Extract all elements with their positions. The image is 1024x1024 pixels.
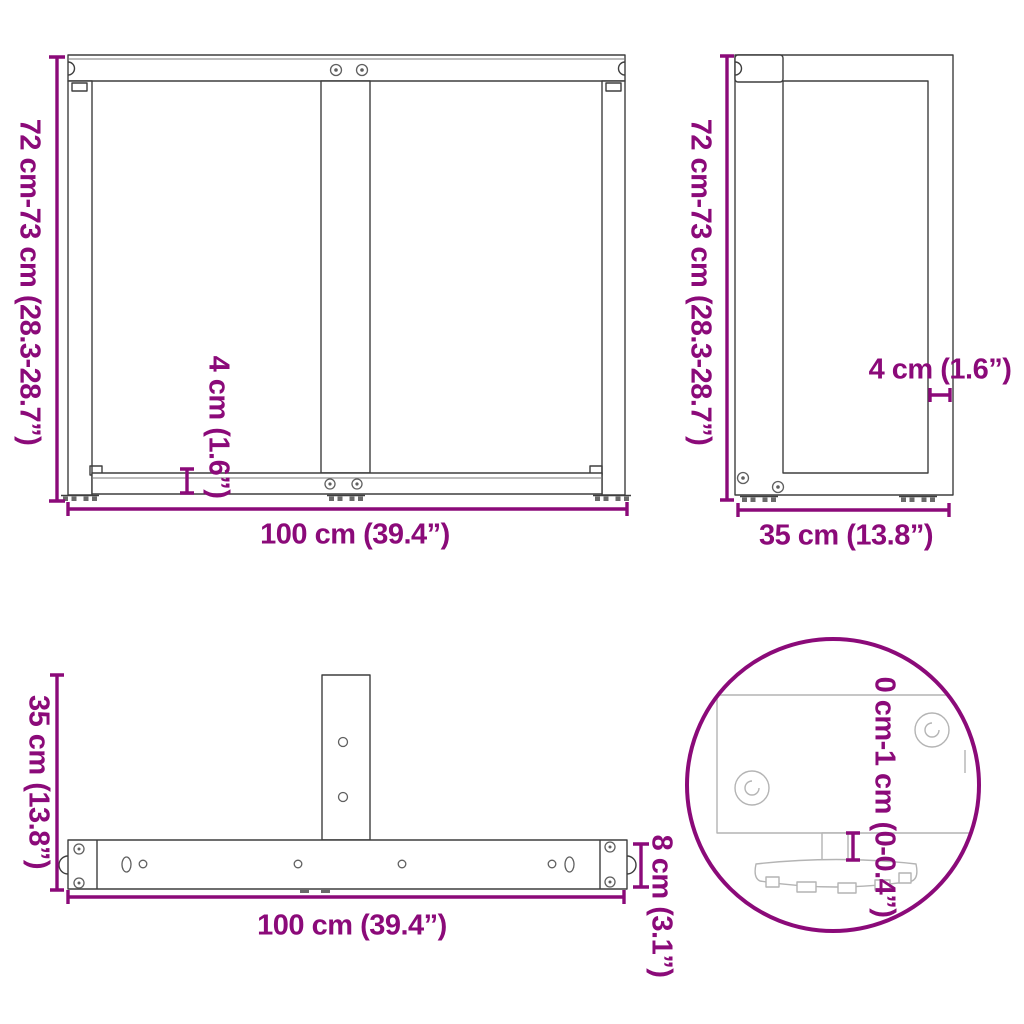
- front-width-dimension-line: [68, 502, 627, 516]
- side-height-dimension-line: [720, 56, 734, 500]
- front-view-height-label: 72 cm-73 cm (28.3-28.7”): [15, 119, 44, 446]
- top-view-width-label: 100 cm (39.4”): [257, 912, 447, 941]
- front-view-bar-label: 4 cm (1.6”): [204, 356, 233, 499]
- front-view-drawing: [49, 55, 631, 516]
- detail-view-drawing: [687, 639, 1017, 931]
- side-rear-foot: [899, 497, 937, 503]
- side-view-profile-label: 4 cm (1.6”): [869, 356, 1012, 385]
- front-height-dimension-line: [49, 57, 65, 501]
- front-view-width-label: 100 cm (39.4”): [260, 521, 450, 550]
- side-view-drawing: [720, 55, 953, 517]
- side-view-height-label: 72 cm-73 cm (28.3-28.7”): [686, 119, 715, 446]
- side-depth-dimension-line: [738, 503, 949, 517]
- top-view-depth-label: 35 cm (13.8”): [24, 695, 53, 869]
- front-middle-foot: [327, 496, 365, 502]
- side-front-foot: [740, 497, 778, 503]
- top-view-drawing: [50, 675, 649, 904]
- table-leg-dimension-diagram: 72 cm-73 cm (28.3-28.7”) 4 cm (1.6”) 100…: [0, 0, 1024, 1024]
- front-left-foot: [61, 496, 99, 502]
- front-right-foot: [593, 496, 631, 502]
- side-view-depth-label: 35 cm (13.8”): [759, 522, 933, 551]
- top-view-bar-width-label: 8 cm (3.1”): [647, 835, 676, 978]
- detail-view-adjustment-label: 0 cm-1 cm (0-0.4”): [870, 677, 899, 918]
- top-width-dimension-line: [68, 890, 624, 904]
